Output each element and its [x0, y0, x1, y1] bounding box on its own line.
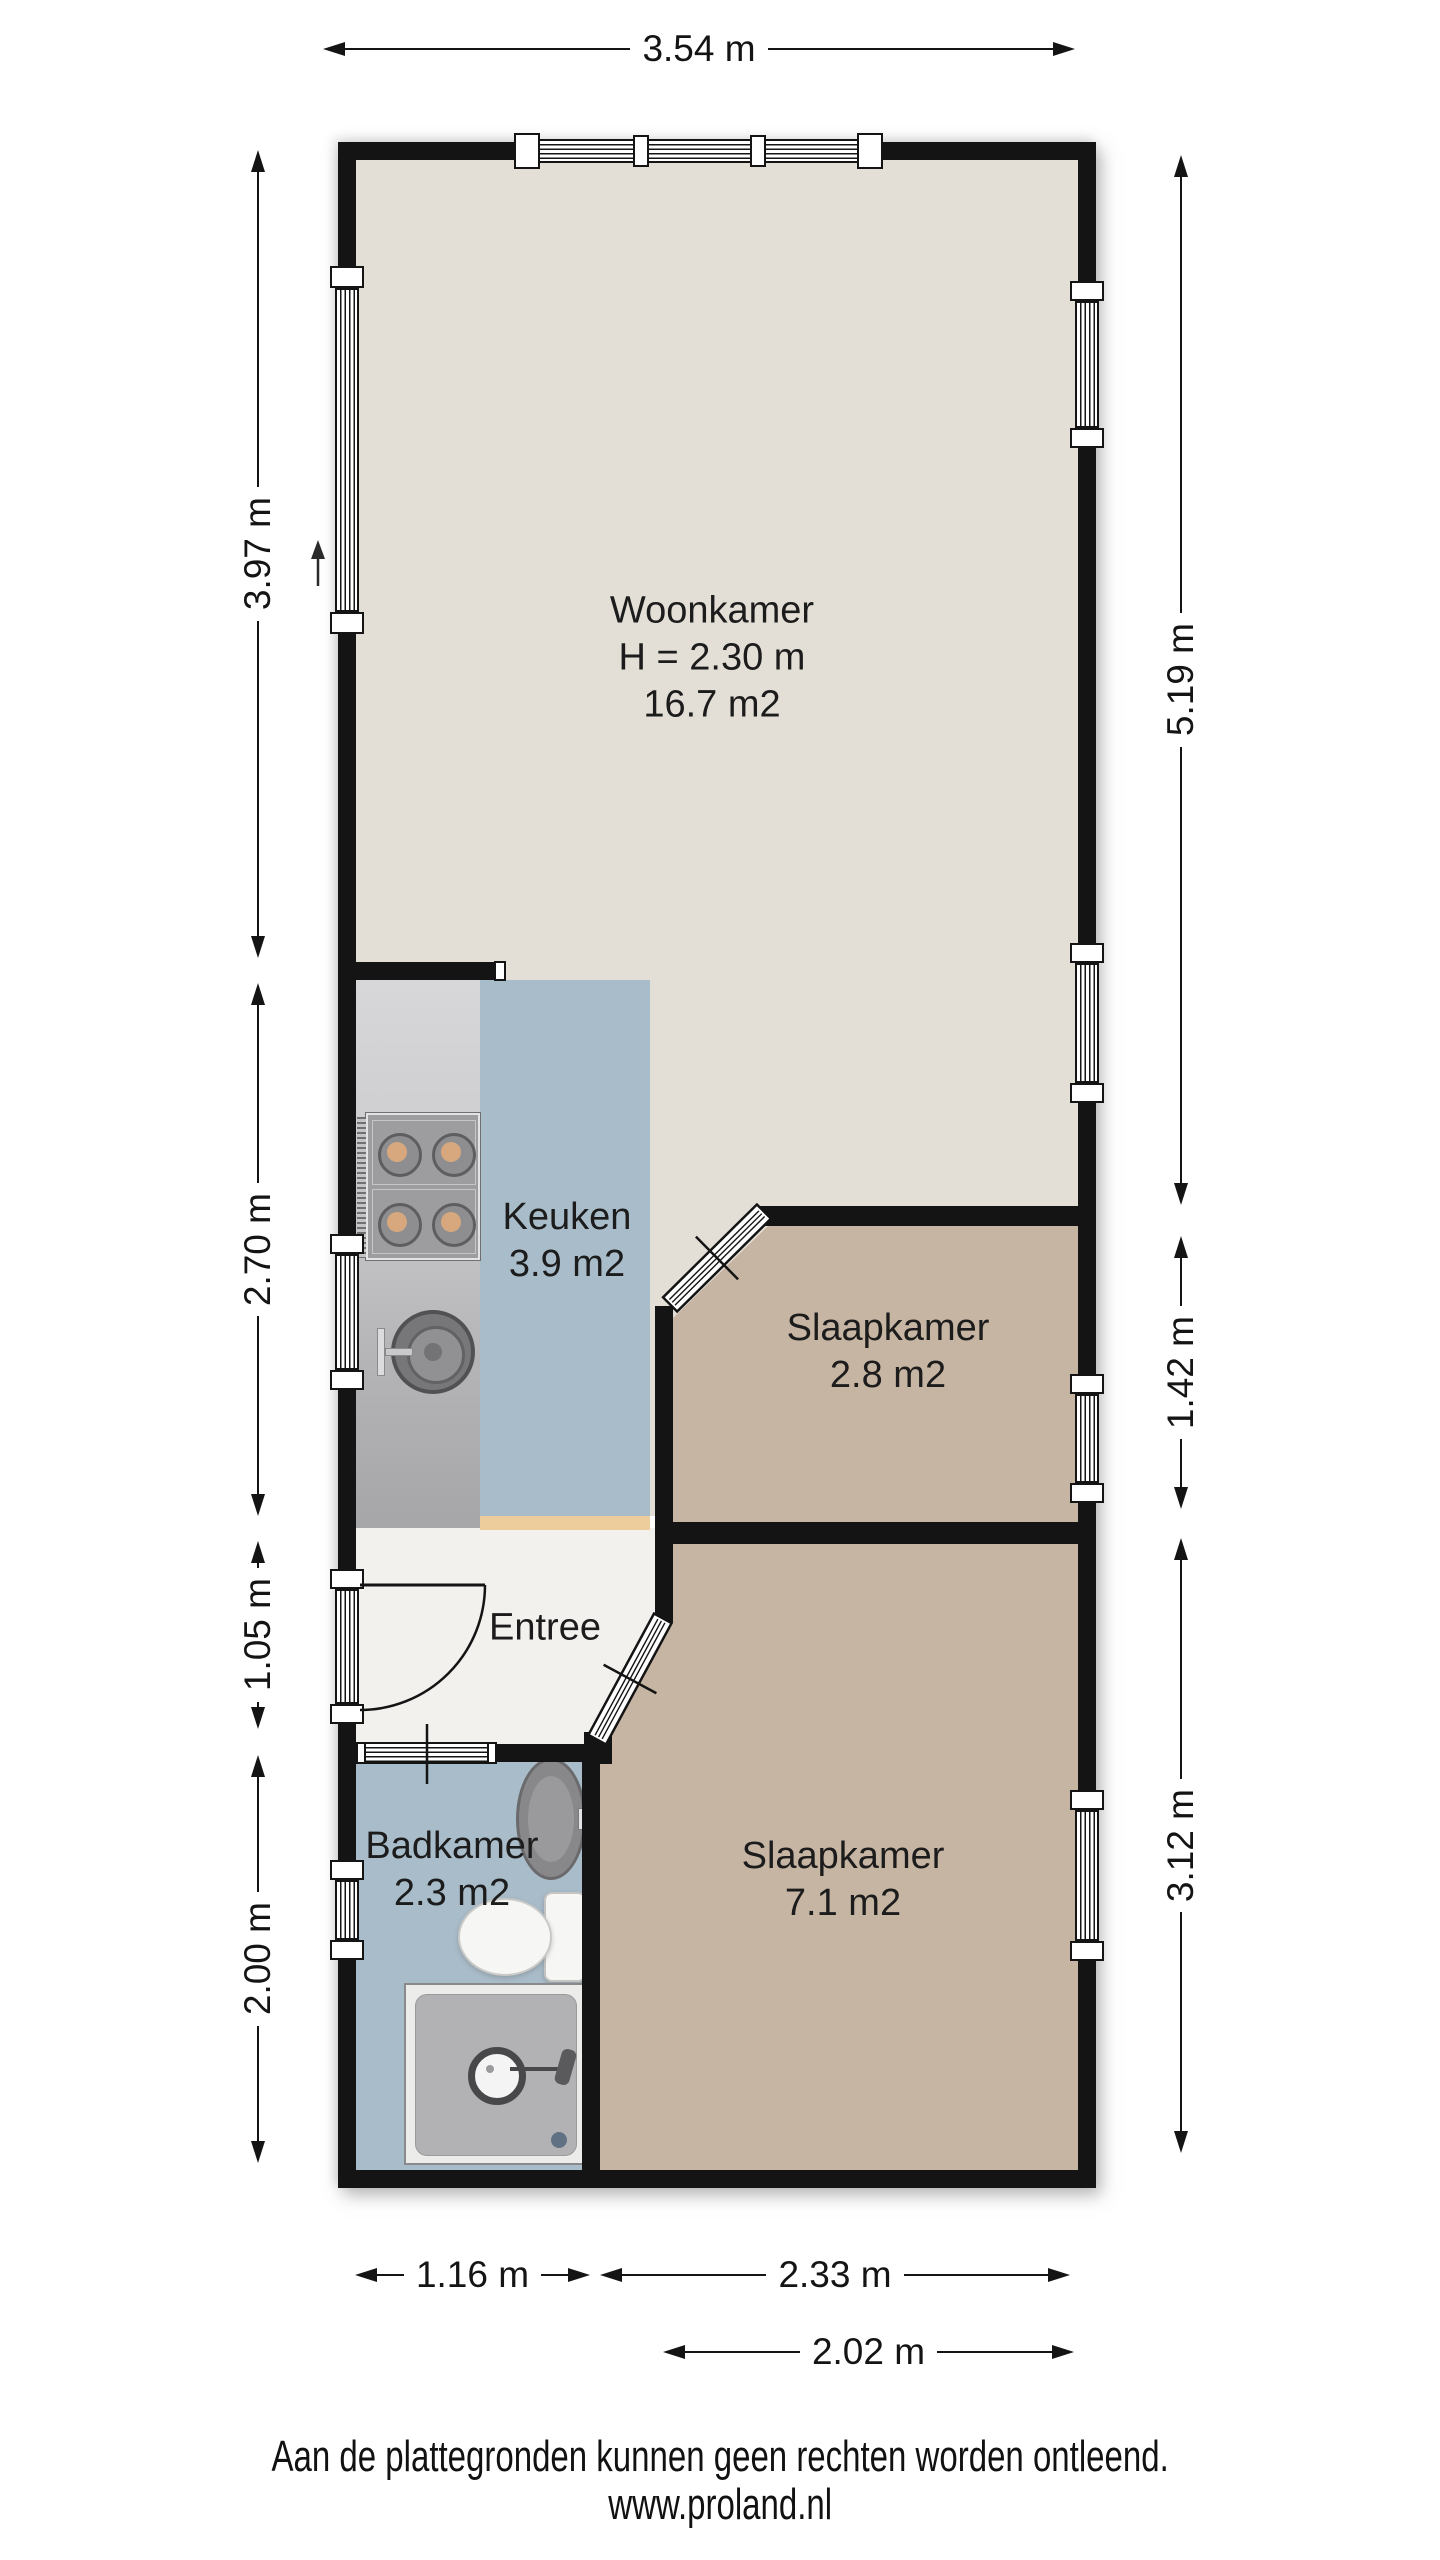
room-area: 16.7 m2 — [610, 682, 814, 729]
window — [519, 139, 883, 163]
burner — [432, 1133, 476, 1177]
wall-keuken-top — [356, 962, 503, 980]
dimension-label: 3.54 m — [630, 28, 767, 70]
dimension-right-3-12: 3.12 m — [1157, 1538, 1205, 2153]
wall-slaapkamer-2-8-left — [655, 1306, 673, 1622]
dimension-label: 2.33 m — [766, 2254, 903, 2296]
window — [335, 288, 359, 612]
dimension-label: 3.97 m — [237, 487, 279, 620]
disclaimer-text: Aan de plattegronden kunnen geen rechten… — [0, 2432, 1440, 2482]
arrowhead-icon — [251, 1494, 265, 1516]
room-height: H = 2.30 m — [610, 635, 814, 682]
wall-exterior-bottom — [338, 2170, 1096, 2188]
kitchen-faucet-icon — [377, 1328, 385, 1376]
dimension-left-2-70: 2.70 m — [234, 983, 282, 1516]
room-label-keuken: Keuken 3.9 m2 — [503, 1194, 632, 1288]
arrowhead-icon — [1174, 1538, 1188, 1560]
room-name: Slaapkamer — [787, 1305, 990, 1352]
window — [1075, 301, 1099, 428]
dimension-label: 1.16 m — [404, 2254, 541, 2296]
window-cap — [330, 1234, 364, 1254]
arrowhead-icon — [1174, 155, 1188, 177]
arrowhead-icon — [251, 1541, 265, 1563]
dimension-label: 3.12 m — [1160, 1779, 1202, 1912]
window — [1075, 1810, 1099, 1941]
room-name: Keuken — [503, 1194, 632, 1241]
window — [335, 1254, 359, 1370]
window-cap — [1070, 1374, 1104, 1394]
arrowhead-icon — [600, 2268, 622, 2282]
room-name: Badkamer — [365, 1823, 538, 1870]
north-arrow-icon — [311, 540, 325, 586]
floorplan-page: Woonkamer H = 2.30 m 16.7 m2 Keuken 3.9 … — [0, 0, 1440, 2560]
dimension-bottom-2-02: 2.02 m — [663, 2328, 1074, 2376]
arrowhead-icon — [1174, 2131, 1188, 2153]
window-cap — [330, 1370, 364, 1390]
stove-icon — [366, 1113, 480, 1260]
arrowhead-icon — [251, 1755, 265, 1777]
arrowhead-icon — [1052, 2345, 1074, 2359]
arrowhead-icon — [251, 2141, 265, 2163]
arrowhead-icon — [1174, 1487, 1188, 1509]
window-cap — [514, 133, 540, 169]
window — [1075, 963, 1099, 1083]
room-label-entree: Entree — [489, 1605, 601, 1652]
wall-between-slaapkamers — [655, 1522, 1078, 1544]
dimension-right-5-19: 5.19 m — [1157, 155, 1205, 1205]
dimension-label: 2.02 m — [800, 2331, 937, 2373]
door-cap — [356, 1742, 366, 1764]
threshold-keuken-entree — [480, 1516, 650, 1530]
arrowhead-icon — [251, 983, 265, 1005]
window-cap — [1070, 943, 1104, 963]
arrowhead-icon — [251, 1707, 265, 1729]
window-mullion — [750, 135, 766, 167]
window-cap — [330, 612, 364, 634]
shower-head-icon — [468, 2047, 526, 2105]
burner — [432, 1203, 476, 1247]
window-mullion — [633, 135, 649, 167]
arrowhead-icon — [1053, 42, 1075, 56]
arrowhead-icon — [251, 150, 265, 172]
arrowhead-icon — [355, 2268, 377, 2282]
dimension-label: 2.70 m — [237, 1183, 279, 1316]
window-cap — [1070, 1790, 1104, 1810]
room-name: Entree — [489, 1605, 601, 1652]
door-badkamer — [362, 1742, 493, 1764]
window-cap — [330, 266, 364, 288]
website-text: www.proland.nl — [0, 2480, 1440, 2530]
dimension-left-3-97: 3.97 m — [234, 150, 282, 958]
shower-drain — [551, 2132, 567, 2148]
room-area: 2.3 m2 — [365, 1870, 538, 1917]
dimension-bottom-2-33: 2.33 m — [600, 2251, 1070, 2299]
arrowhead-icon — [1174, 1183, 1188, 1205]
arrowhead-icon — [568, 2268, 590, 2282]
kitchen-faucet-arm — [385, 1348, 413, 1356]
window-cap — [330, 1940, 364, 1960]
burner — [378, 1203, 422, 1247]
dimension-bottom-1-16: 1.16 m — [355, 2251, 590, 2299]
arrowhead-icon — [663, 2345, 685, 2359]
room-label-woonkamer: Woonkamer H = 2.30 m 16.7 m2 — [610, 588, 814, 729]
room-area: 7.1 m2 — [742, 1880, 945, 1927]
window-cap — [1070, 281, 1104, 301]
window-cap — [1070, 1483, 1104, 1503]
dimension-right-1-42: 1.42 m — [1157, 1236, 1205, 1509]
wall-stub-diagonal — [584, 1732, 612, 1764]
window-cap — [330, 1569, 364, 1589]
window-cap — [857, 133, 883, 169]
arrowhead-icon — [1174, 1236, 1188, 1258]
burner — [378, 1133, 422, 1177]
dimension-left-1-05: 1.05 m — [234, 1541, 282, 1729]
room-name: Woonkamer — [610, 588, 814, 635]
arrowhead-icon — [251, 936, 265, 958]
window-cap — [330, 1704, 364, 1724]
window-cap — [1070, 1941, 1104, 1961]
window-cap — [330, 1860, 364, 1880]
dimension-label: 1.05 m — [237, 1568, 279, 1701]
wall-badkamer-right — [582, 1744, 600, 2170]
room-label-slaapkamer-2-8: Slaapkamer 2.8 m2 — [787, 1305, 990, 1399]
window — [1075, 1394, 1099, 1483]
wall-slaapkamer-2-8-top — [757, 1206, 1078, 1226]
arrowhead-icon — [1048, 2268, 1070, 2282]
shower-tray — [404, 1983, 586, 2165]
dimension-label: 5.19 m — [1160, 613, 1202, 746]
window-cap — [1070, 1083, 1104, 1103]
window — [335, 1880, 359, 1940]
room-label-badkamer: Badkamer 2.3 m2 — [365, 1823, 538, 1917]
room-label-slaapkamer-7-1: Slaapkamer 7.1 m2 — [742, 1833, 945, 1927]
dimension-label: 1.42 m — [1160, 1306, 1202, 1439]
wall-end-cap — [494, 961, 506, 981]
door-cap — [487, 1742, 497, 1764]
dimension-label: 2.00 m — [237, 1892, 279, 2025]
dimension-left-2-00: 2.00 m — [234, 1755, 282, 2163]
room-name: Slaapkamer — [742, 1833, 945, 1880]
room-area: 2.8 m2 — [787, 1352, 990, 1399]
dimension-top-3-54: 3.54 m — [323, 25, 1075, 73]
room-area: 3.9 m2 — [503, 1241, 632, 1288]
front-door-sidelight — [335, 1589, 359, 1704]
arrowhead-icon — [323, 42, 345, 56]
window-cap — [1070, 428, 1104, 448]
